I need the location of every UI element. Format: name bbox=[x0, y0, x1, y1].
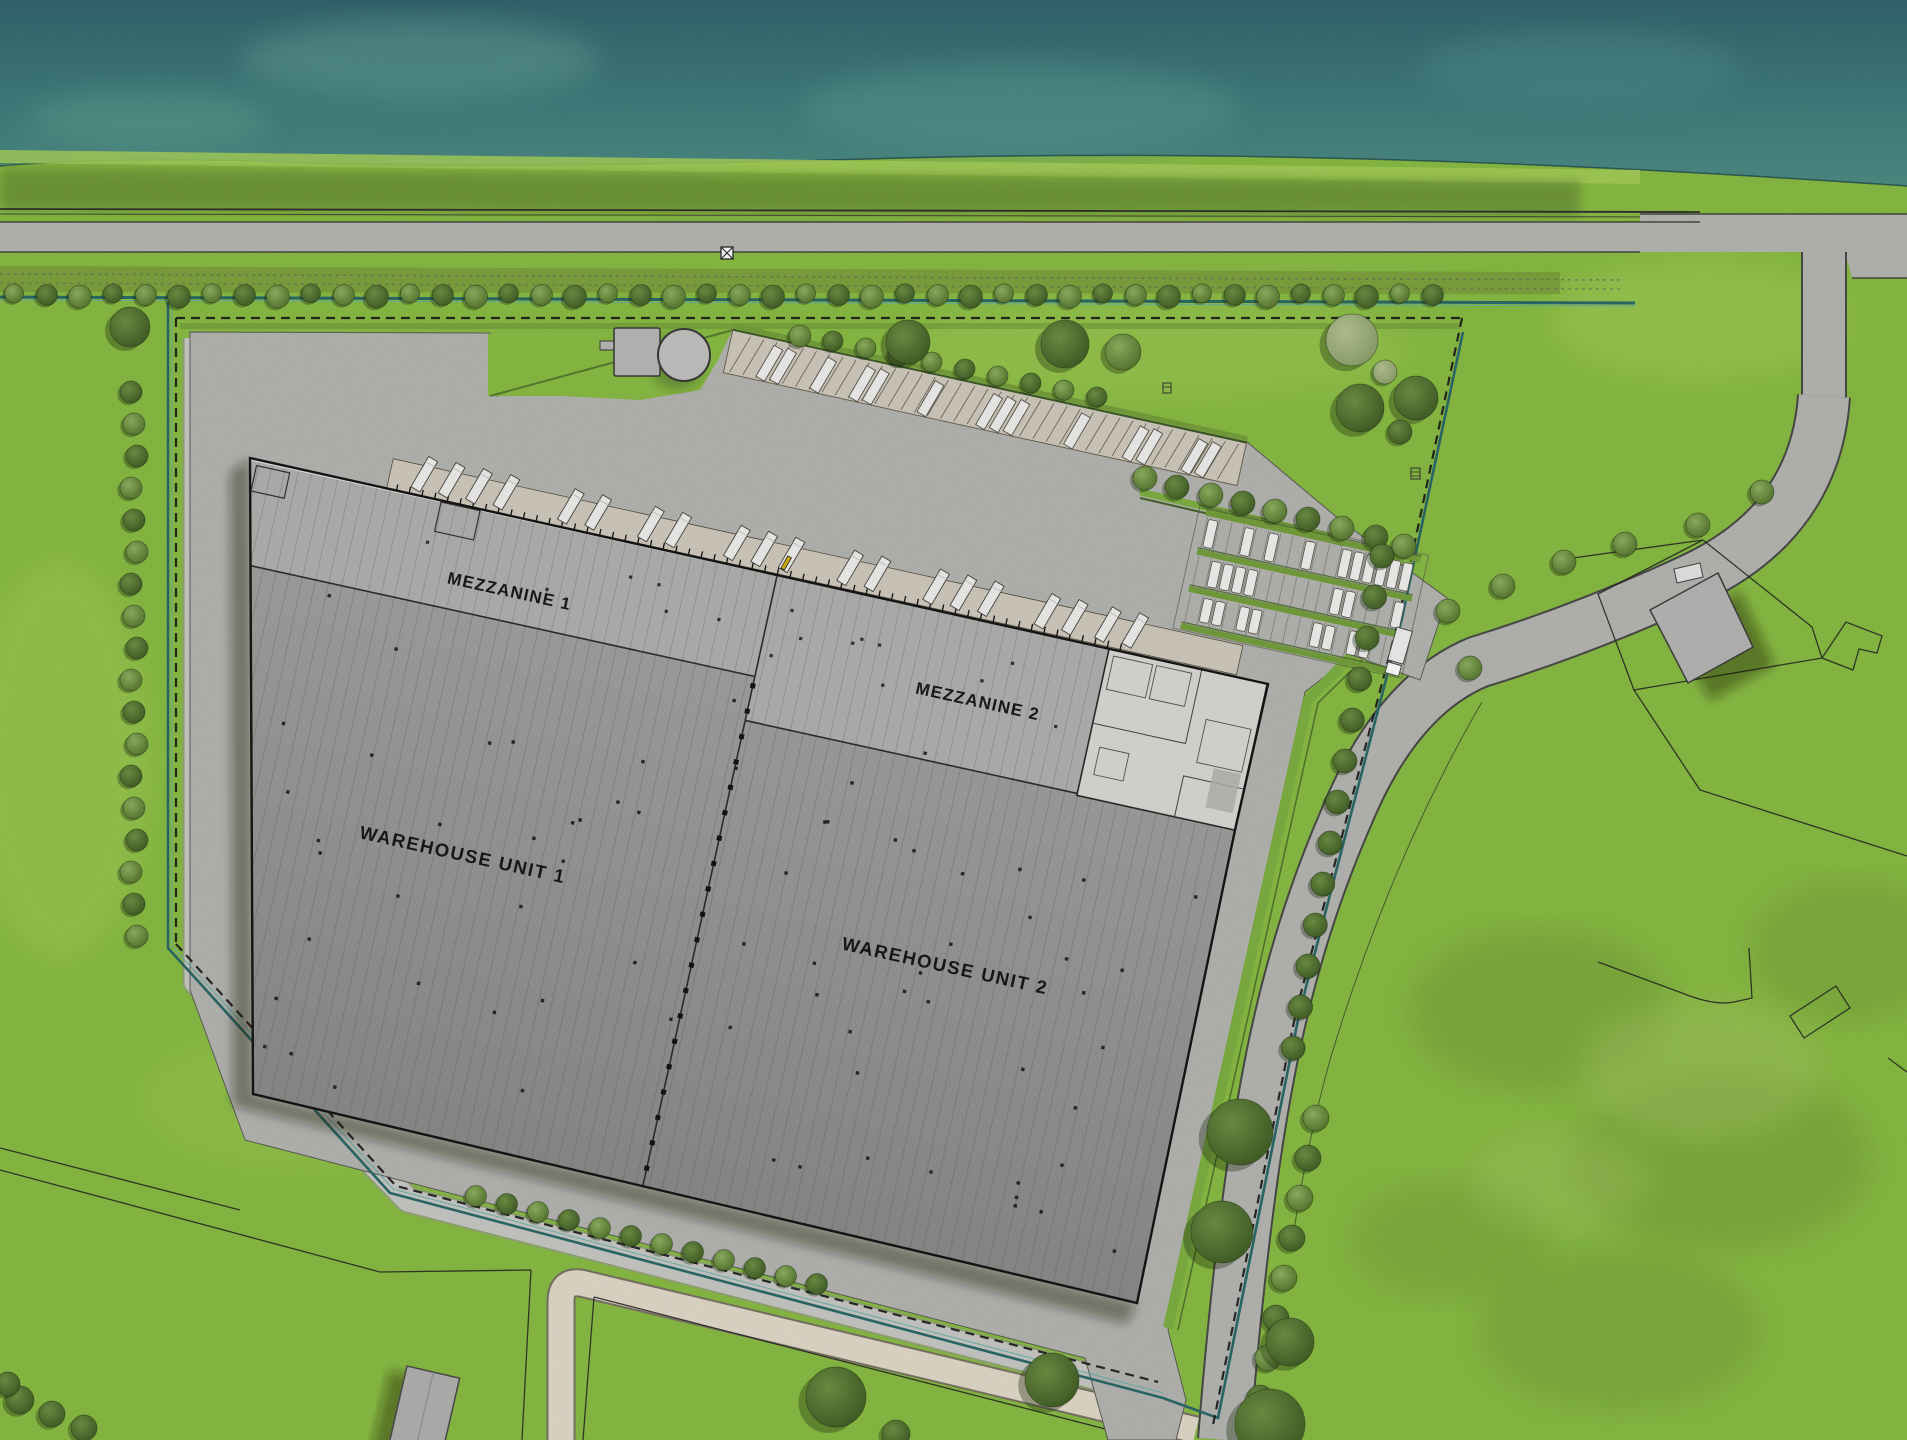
site-plan-canvas: MEZZANINE 1 MEZZANINE 2 WAREHOUSE UNIT 1… bbox=[0, 0, 1907, 1440]
site-plan-image: MEZZANINE 1 MEZZANINE 2 WAREHOUSE UNIT 1… bbox=[0, 0, 1907, 1440]
texture-overlay bbox=[0, 0, 1907, 1440]
